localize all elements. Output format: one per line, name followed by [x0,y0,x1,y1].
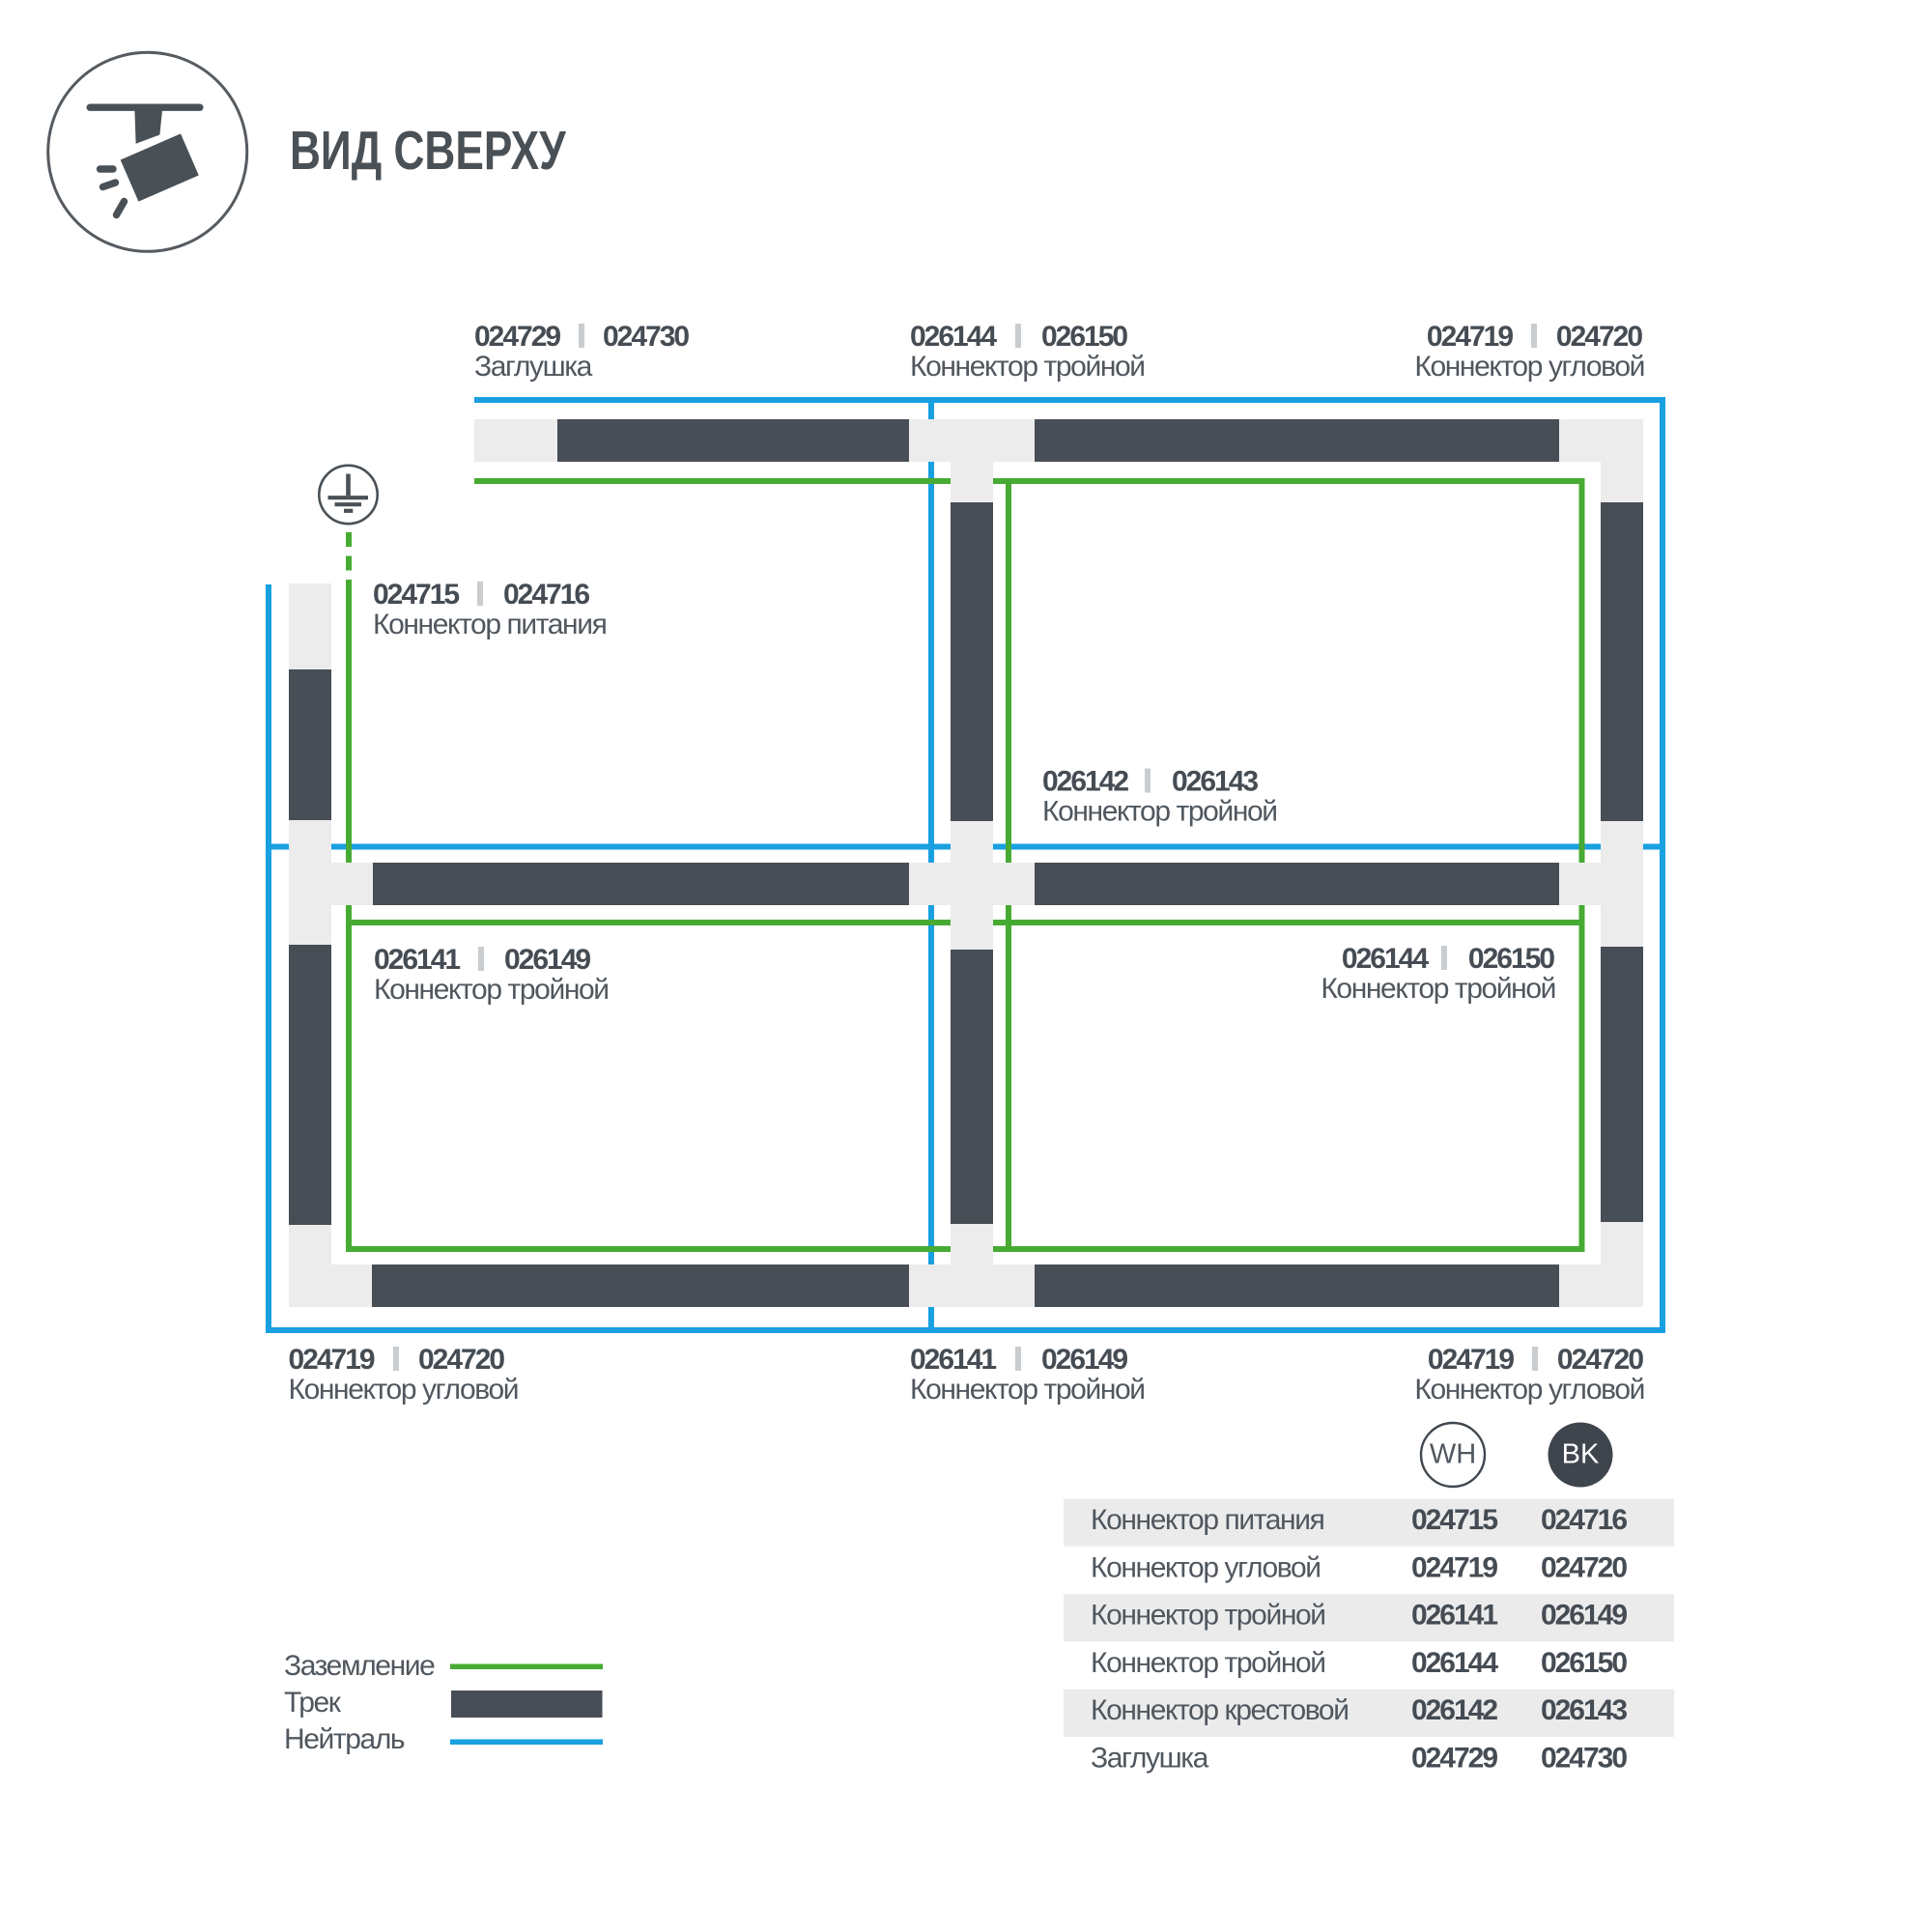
svg-text:Коннектор тройной: Коннектор тройной [1042,796,1277,828]
svg-text:Коннектор питания: Коннектор питания [373,609,607,640]
svg-text:024715: 024715 [373,579,459,611]
svg-text:ВИД СВЕРХУ: ВИД СВЕРХУ [290,120,567,182]
svg-text:026142: 026142 [1042,766,1128,798]
svg-text:026143: 026143 [1172,766,1258,798]
svg-text:026149: 026149 [1541,1600,1627,1632]
svg-text:Нейтраль: Нейтраль [284,1723,405,1755]
svg-text:024716: 024716 [1541,1504,1627,1536]
svg-text:Коннектор тройной: Коннектор тройной [910,1374,1145,1406]
svg-text:026141: 026141 [910,1344,996,1376]
svg-text:Коннектор угловой: Коннектор угловой [289,1374,519,1406]
svg-text:026149: 026149 [504,944,590,976]
svg-text:026142: 026142 [1411,1694,1497,1726]
svg-text:Заглушка: Заглушка [1091,1743,1209,1775]
svg-text:Заземление: Заземление [284,1650,435,1682]
svg-text:Коннектор угловой: Коннектор угловой [1414,351,1644,383]
svg-text:Заглушка: Заглушка [474,351,593,383]
svg-text:024716: 024716 [503,579,589,611]
svg-text:026149: 026149 [1041,1344,1127,1376]
svg-text:024720: 024720 [418,1344,504,1376]
svg-text:024730: 024730 [1541,1743,1627,1775]
svg-text:Коннектор тройной: Коннектор тройной [1321,973,1555,1005]
svg-text:026144: 026144 [910,321,997,353]
svg-text:026150: 026150 [1541,1647,1627,1679]
svg-text:026144: 026144 [1342,943,1429,975]
svg-text:Коннектор тройной: Коннектор тройной [374,974,609,1006]
svg-text:BK: BK [1562,1439,1600,1470]
svg-text:Коннектор крестовой: Коннектор крестовой [1091,1694,1349,1726]
svg-text:024719: 024719 [1427,321,1513,353]
svg-text:WH: WH [1430,1439,1476,1470]
svg-text:026143: 026143 [1541,1694,1627,1726]
svg-text:024719: 024719 [1411,1551,1497,1583]
svg-text:024720: 024720 [1556,321,1642,353]
svg-text:Трек: Трек [284,1687,342,1719]
svg-text:026150: 026150 [1468,943,1554,975]
svg-text:Коннектор угловой: Коннектор угловой [1091,1551,1321,1583]
svg-text:Коннектор тройной: Коннектор тройной [1091,1647,1325,1679]
svg-text:Коннектор тройной: Коннектор тройной [910,351,1145,383]
svg-text:026144: 026144 [1411,1647,1498,1679]
svg-text:024729: 024729 [474,321,560,353]
svg-text:024729: 024729 [1411,1743,1497,1775]
svg-text:Коннектор питания: Коннектор питания [1091,1504,1324,1536]
svg-text:Коннектор угловой: Коннектор угловой [1414,1374,1644,1406]
svg-text:026141: 026141 [1411,1600,1497,1632]
svg-text:024715: 024715 [1411,1504,1497,1536]
svg-text:024719: 024719 [289,1344,375,1376]
svg-text:024719: 024719 [1428,1344,1514,1376]
svg-text:024720: 024720 [1541,1551,1627,1583]
svg-text:Коннектор тройной: Коннектор тройной [1091,1600,1325,1632]
svg-text:024720: 024720 [1557,1344,1643,1376]
svg-text:026150: 026150 [1041,321,1127,353]
svg-text:024730: 024730 [603,321,689,353]
svg-text:026141: 026141 [374,944,460,976]
